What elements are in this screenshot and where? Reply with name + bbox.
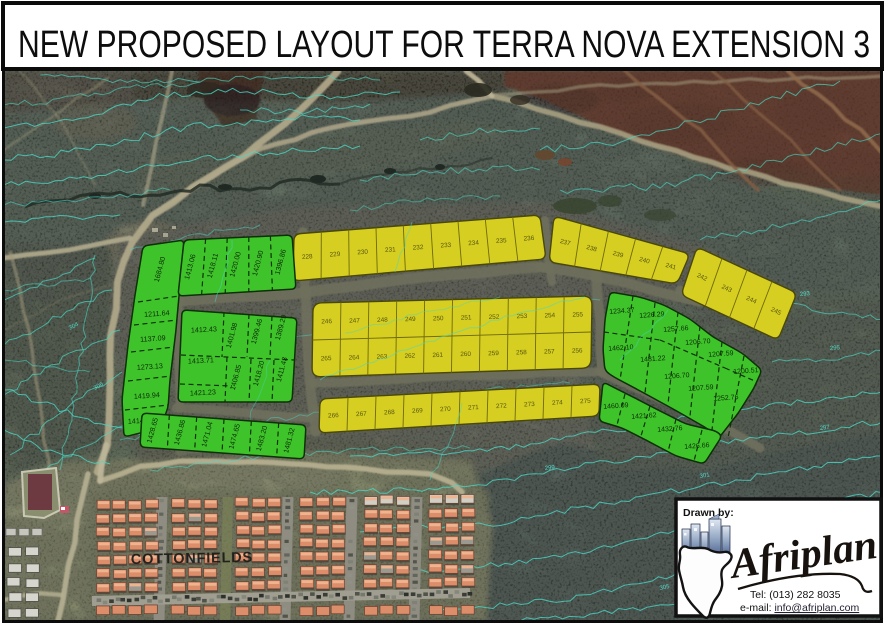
svg-text:246: 246 — [321, 318, 332, 325]
svg-text:1273.13: 1273.13 — [137, 361, 164, 372]
svg-text:232: 232 — [413, 244, 425, 252]
svg-text:274: 274 — [552, 399, 563, 407]
svg-text:1419.94: 1419.94 — [134, 390, 161, 401]
svg-text:228: 228 — [302, 253, 314, 261]
svg-text:275: 275 — [580, 398, 591, 406]
svg-text:1421.23: 1421.23 — [190, 387, 216, 397]
svg-text:265: 265 — [321, 355, 332, 362]
svg-text:254: 254 — [544, 312, 555, 319]
svg-text:270: 270 — [440, 406, 451, 414]
svg-text:295: 295 — [830, 345, 841, 352]
svg-text:248: 248 — [377, 317, 388, 324]
svg-text:NEW PROPOSED LAYOUT FOR TERRA: NEW PROPOSED LAYOUT FOR TERRA NOVA EXTEN… — [18, 24, 870, 66]
svg-text:234: 234 — [468, 240, 480, 248]
svg-text:233: 233 — [440, 242, 452, 250]
svg-text:255: 255 — [572, 311, 583, 318]
svg-text:230: 230 — [357, 249, 369, 257]
svg-text:262: 262 — [404, 353, 415, 360]
svg-text:1413.71: 1413.71 — [188, 355, 214, 365]
svg-text:249: 249 — [405, 316, 416, 323]
svg-text:e-mail: info@afriplan.com: e-mail: info@afriplan.com — [740, 602, 859, 614]
svg-text:Tel: (013) 282 8035: Tel: (013) 282 8035 — [750, 589, 841, 601]
svg-text:253: 253 — [516, 313, 527, 320]
svg-text:267: 267 — [356, 411, 367, 419]
svg-text:251: 251 — [461, 314, 472, 321]
svg-text:250: 250 — [433, 315, 444, 322]
svg-text:261: 261 — [432, 352, 443, 359]
svg-text:231: 231 — [385, 246, 397, 254]
svg-text:264: 264 — [349, 354, 360, 361]
svg-text:256: 256 — [572, 347, 583, 354]
svg-text:259: 259 — [488, 350, 499, 357]
svg-text:Drawn by:: Drawn by: — [683, 507, 734, 519]
svg-text:236: 236 — [523, 235, 535, 243]
svg-text:271: 271 — [468, 404, 479, 412]
svg-text:268: 268 — [384, 409, 395, 417]
svg-text:258: 258 — [516, 349, 527, 356]
svg-text:235: 235 — [496, 237, 508, 245]
svg-text:272: 272 — [496, 403, 507, 411]
svg-text:1211.64: 1211.64 — [144, 308, 170, 319]
svg-text:257: 257 — [544, 348, 555, 355]
svg-text:299: 299 — [545, 465, 556, 472]
svg-text:273: 273 — [524, 401, 535, 409]
svg-text:247: 247 — [349, 317, 360, 324]
svg-text:293: 293 — [800, 291, 811, 298]
svg-text:260: 260 — [460, 351, 471, 358]
svg-text:COTTONFIELDS: COTTONFIELDS — [131, 550, 253, 568]
svg-text:1412.43: 1412.43 — [191, 324, 217, 334]
svg-text:1137.09: 1137.09 — [140, 333, 166, 344]
svg-text:269: 269 — [412, 407, 423, 415]
svg-text:229: 229 — [329, 251, 341, 259]
svg-text:266: 266 — [328, 412, 339, 420]
